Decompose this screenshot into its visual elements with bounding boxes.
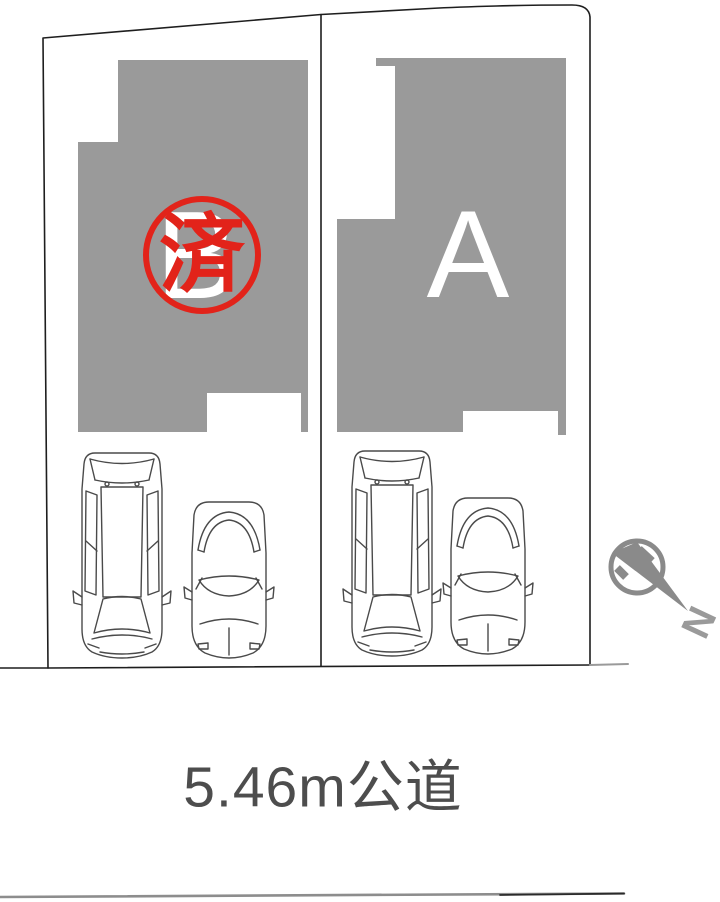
van-car-icon: [343, 451, 441, 656]
sedan-car-icon: [184, 502, 274, 658]
sedan-car-icon: [443, 498, 533, 654]
north-compass-pin-icon: [611, 541, 688, 611]
lot-a-label: A: [427, 193, 510, 317]
road-width-label: 5.46m公道: [183, 760, 462, 817]
road-near-edge-extension: [590, 664, 628, 665]
road-near-edge-line: [0, 665, 590, 668]
site-plan: B A 済 N 5.46m公道: [0, 0, 720, 902]
van-car-icon: [73, 453, 171, 658]
sold-stamp: 済: [143, 196, 261, 314]
sold-stamp-text: 済: [159, 212, 245, 298]
